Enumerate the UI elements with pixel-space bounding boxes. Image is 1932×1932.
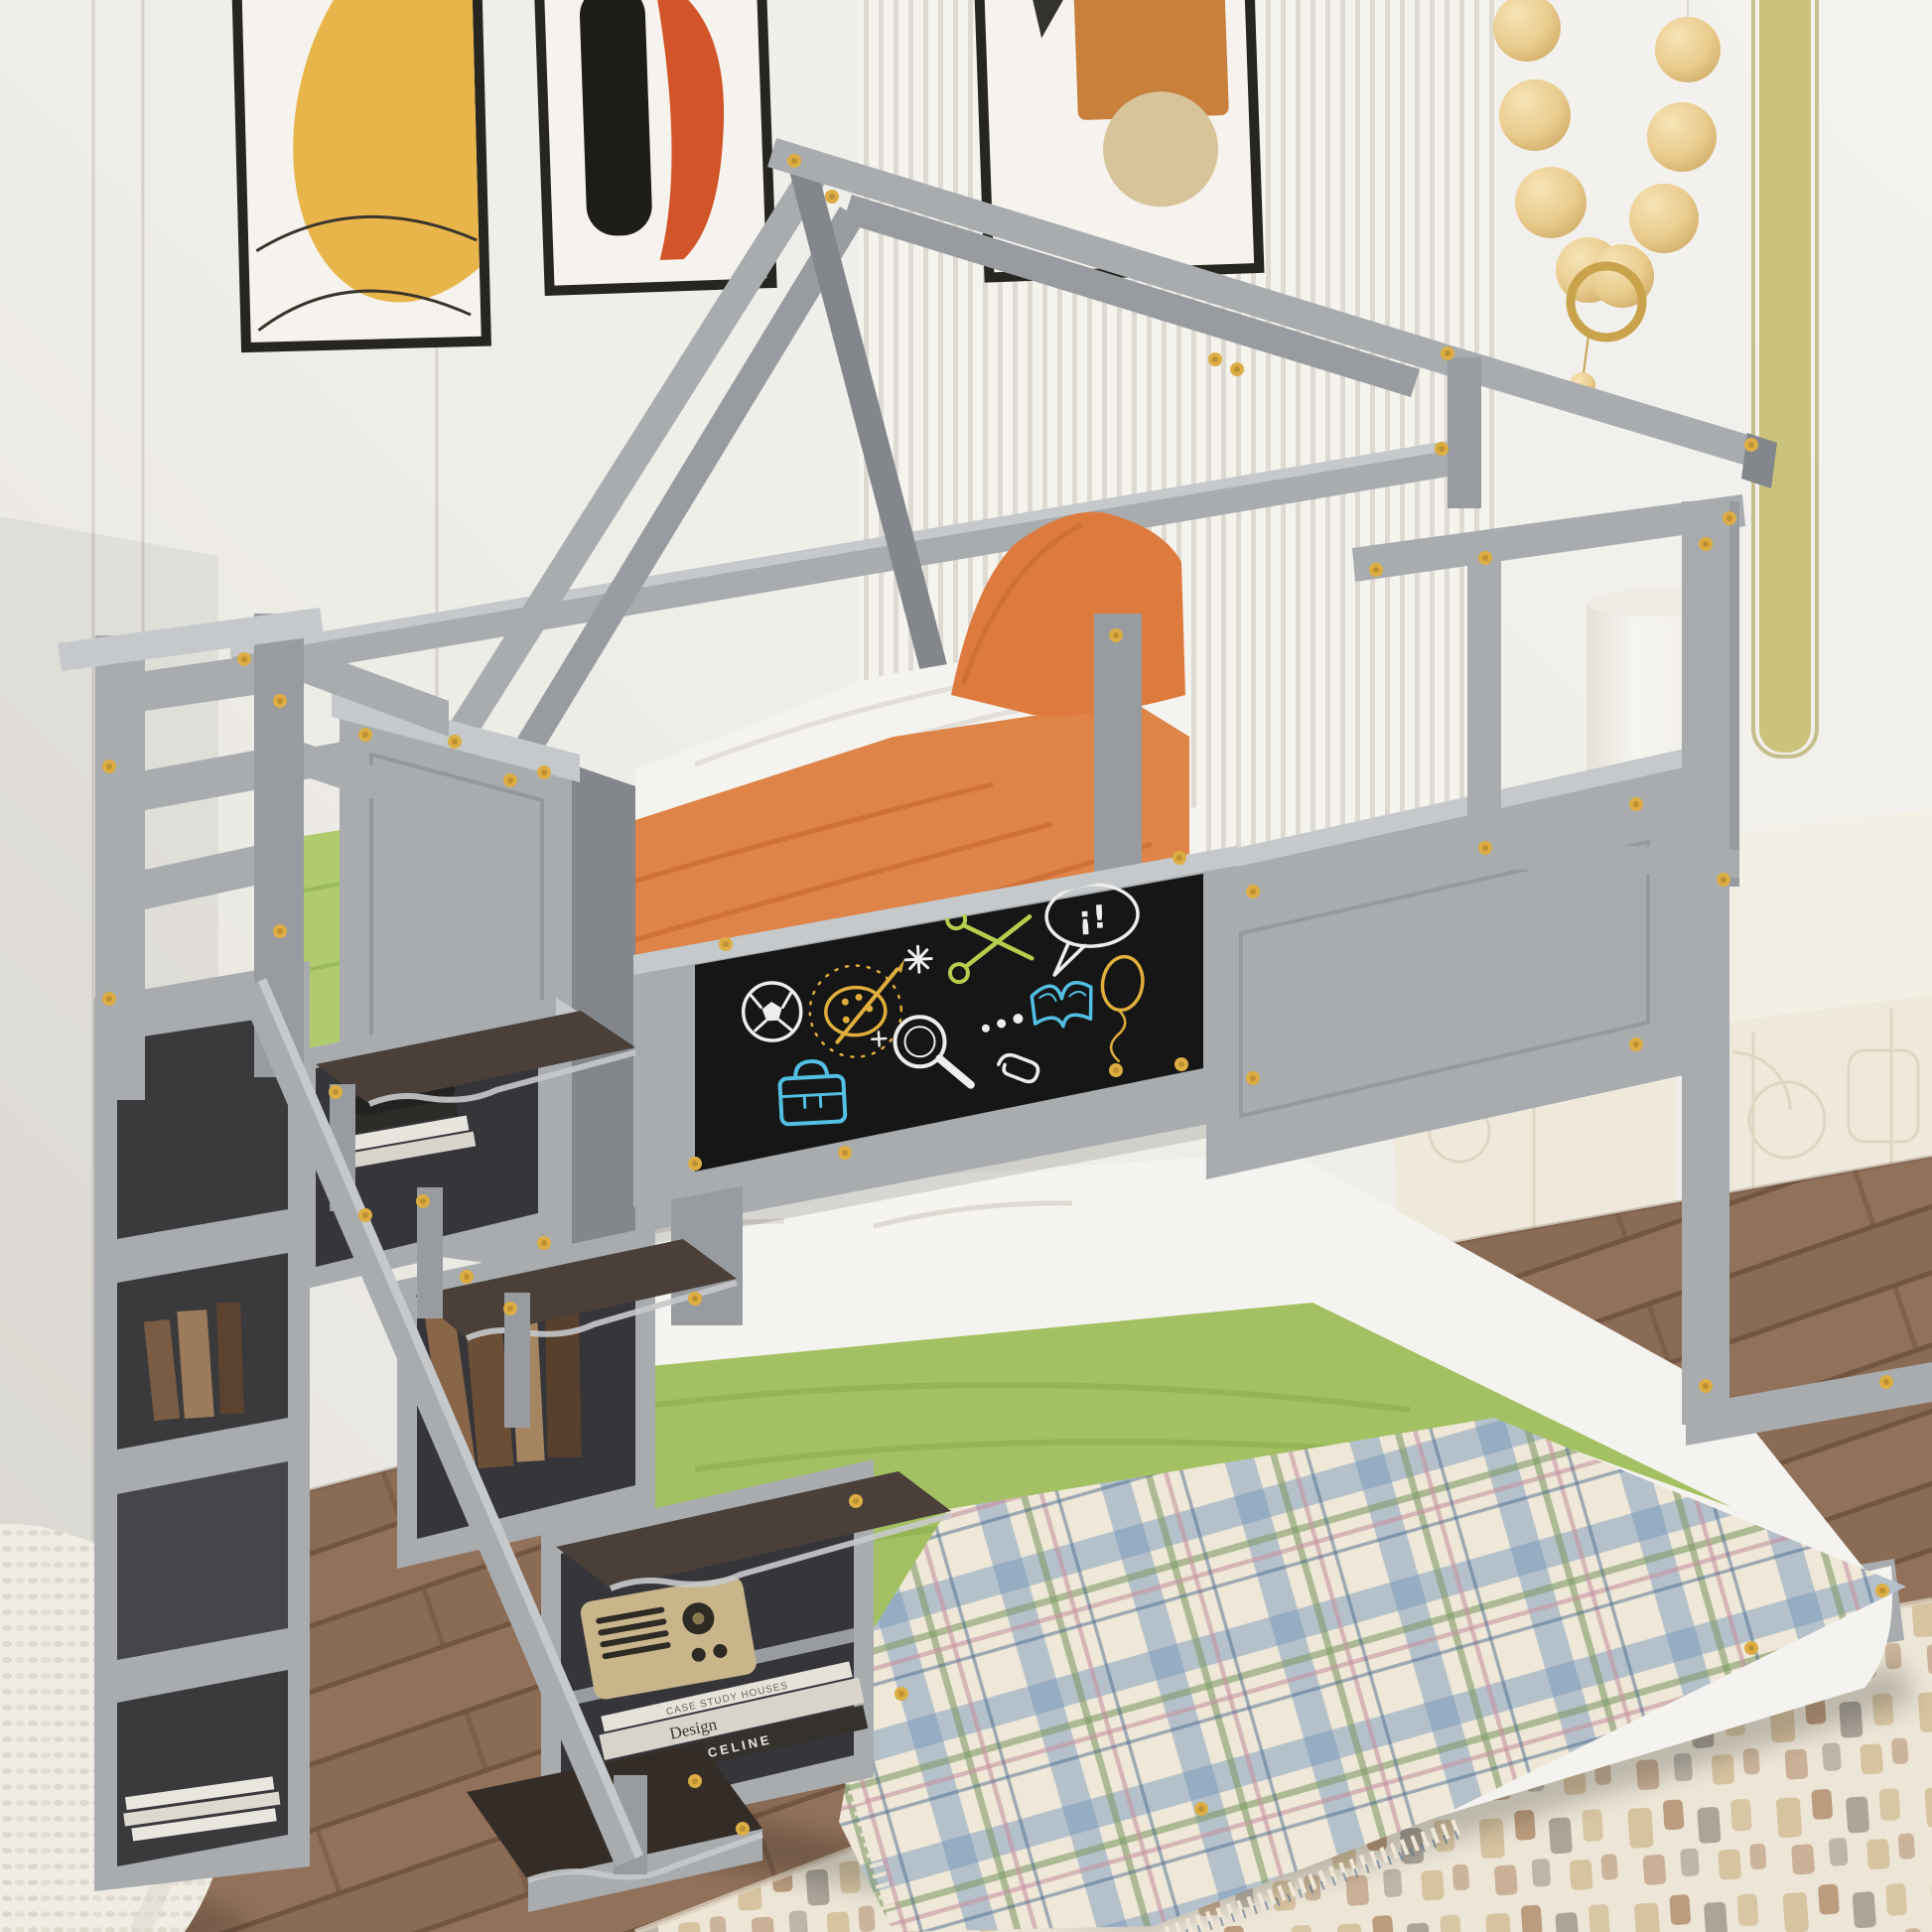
stair-column bbox=[94, 961, 310, 1891]
ridge-post bbox=[1448, 357, 1481, 508]
art-black-shape bbox=[579, 0, 653, 236]
speech-text: ¡! bbox=[1077, 897, 1108, 936]
cubby-book bbox=[216, 1303, 244, 1415]
banister-stile-left bbox=[95, 635, 145, 1100]
art-frame-2 bbox=[533, 0, 776, 296]
column-cubby-3 bbox=[117, 1461, 288, 1660]
product-photo: ¡! bbox=[0, 0, 1932, 1932]
right-corner-post bbox=[1682, 501, 1729, 1425]
wall-niche bbox=[1753, 0, 1817, 757]
window-left-stile bbox=[1467, 536, 1501, 874]
